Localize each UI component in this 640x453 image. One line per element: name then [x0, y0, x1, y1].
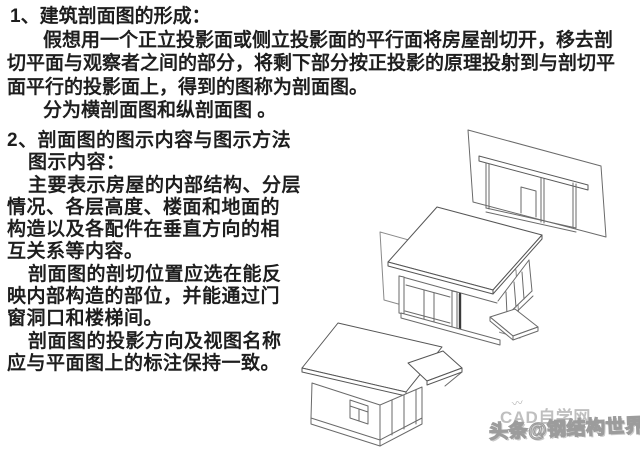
section-1-heading: 1、建筑剖面图的形成： — [7, 5, 615, 29]
section-1-formation: 1、建筑剖面图的形成： 假想用一个正立投影面或侧立投影面的平行面将房屋剖切开，移… — [7, 5, 615, 123]
text-line: 面平行的投影面上，得到的图称为剖面图。 — [7, 76, 615, 100]
text-line: 主要表示房屋的内部结构、分层 — [7, 175, 301, 197]
text-line: 剖面图的投影方向及视图名称 — [7, 331, 301, 353]
text-line: 假想用一个正立投影面或侧立投影面的平行面将房屋剖切开，移去剖 — [7, 29, 615, 53]
text-line: 切平面与观察者之间的部分，将剩下部分按正投影的原理投射到与剖切平 — [7, 52, 615, 76]
sectioned-house-rear — [388, 207, 542, 345]
text-line: 应与平面图上的标注保持一致。 — [7, 353, 301, 375]
section-2-subheading: 图示内容： — [7, 152, 301, 174]
text-line: 互关系等内容。 — [7, 241, 301, 263]
section-2-heading: 2、剖面图的图示内容与图示方法 — [7, 130, 301, 152]
removed-house-front — [302, 323, 462, 446]
slide-page: 1、建筑剖面图的形成： 假想用一个正立投影面或侧立投影面的平行面将房屋剖切开，移… — [0, 0, 640, 453]
text-line: 剖面图的剖切位置应选在能反 — [7, 264, 301, 286]
section-2-content-method: 2、剖面图的图示内容与图示方法 图示内容： 主要表示房屋的内部结构、分层 情况、… — [7, 130, 301, 375]
text-line: 情况、各层高度、楼面和地面的 — [7, 197, 301, 219]
text-line: 构造以及各配件在垂直方向的相 — [7, 219, 301, 241]
text-line: 窗洞口和楼梯间。 — [7, 308, 301, 330]
text-line: 映内部构造的部位，并能通过门 — [7, 286, 301, 308]
